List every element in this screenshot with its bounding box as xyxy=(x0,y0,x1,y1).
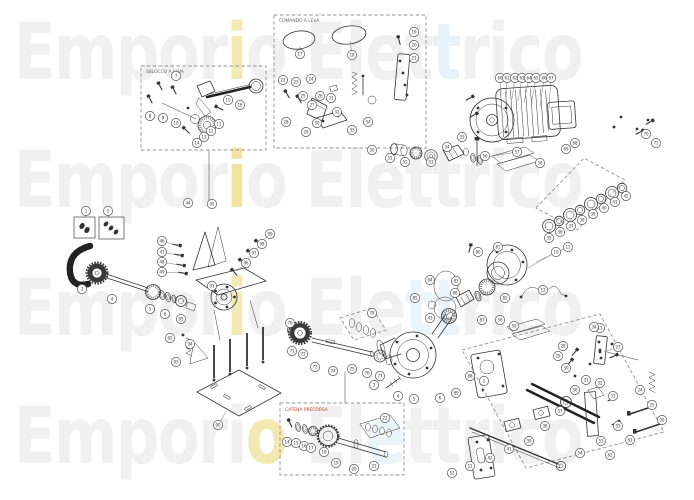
svg-text:6: 6 xyxy=(164,312,167,317)
part-balloon: 99 xyxy=(265,229,274,238)
svg-text:78: 78 xyxy=(369,311,375,316)
svg-text:38: 38 xyxy=(542,424,548,429)
parts-diagram-page: Emporio ElettricoEmporio ElettricoEmpori… xyxy=(0,0,694,500)
part-balloon: 50 xyxy=(367,145,376,154)
part-balloon: 48 xyxy=(157,257,166,266)
part-balloon: 78 xyxy=(367,308,376,317)
part-balloon: 87 xyxy=(477,315,486,324)
svg-text:70: 70 xyxy=(643,132,649,137)
part-balloon: 34 xyxy=(589,322,598,331)
part-balloon: 33 xyxy=(347,125,356,134)
part-balloon: 92 xyxy=(165,333,174,342)
svg-text:5: 5 xyxy=(413,397,416,402)
part-balloon: 10 xyxy=(551,247,560,256)
part-balloon: 32 xyxy=(332,107,341,116)
svg-text:5: 5 xyxy=(149,307,152,312)
part-balloon: 22 xyxy=(278,75,287,84)
part-balloon: 94 xyxy=(185,339,194,348)
svg-text:87: 87 xyxy=(479,318,485,323)
svg-text:4: 4 xyxy=(397,394,400,399)
part-balloon: 4 xyxy=(393,391,402,400)
svg-text:71: 71 xyxy=(289,349,295,354)
part-balloon: 69 xyxy=(561,144,570,153)
part-balloon: 27 xyxy=(307,100,316,109)
svg-text:94: 94 xyxy=(187,342,193,347)
part-balloon: 73 xyxy=(310,362,319,371)
svg-text:48: 48 xyxy=(159,260,165,265)
part-balloon: 3 xyxy=(369,380,378,389)
bracket-foot xyxy=(196,268,266,295)
svg-text:76: 76 xyxy=(364,371,370,376)
part-balloon: 10 xyxy=(171,118,180,127)
svg-text:4: 4 xyxy=(111,297,114,302)
svg-text:88: 88 xyxy=(467,374,473,379)
part-balloon: 39 xyxy=(588,209,597,218)
inset-lever-control-label: COMANDO A LEVA xyxy=(279,18,319,24)
part-balloon: 17 xyxy=(295,49,304,58)
svg-text:97: 97 xyxy=(251,251,257,256)
svg-text:18: 18 xyxy=(321,450,327,455)
part-balloon: 29 xyxy=(301,127,310,136)
svg-text:41: 41 xyxy=(612,200,618,205)
svg-text:42: 42 xyxy=(487,456,493,461)
svg-text:20: 20 xyxy=(351,467,357,472)
svg-text:2: 2 xyxy=(107,209,110,214)
svg-text:73: 73 xyxy=(312,365,318,370)
svg-text:61: 61 xyxy=(627,438,633,443)
part-balloon: 4 xyxy=(107,294,116,303)
svg-text:54: 54 xyxy=(444,145,450,150)
svg-text:13: 13 xyxy=(201,135,207,140)
part-balloon: 11 xyxy=(563,242,572,251)
svg-text:45: 45 xyxy=(209,202,215,207)
svg-text:57: 57 xyxy=(514,150,520,155)
svg-text:46: 46 xyxy=(159,239,165,244)
part-balloon: 36 xyxy=(570,385,579,394)
svg-text:51: 51 xyxy=(467,464,473,469)
svg-text:16: 16 xyxy=(237,103,243,108)
part-balloon: 11 xyxy=(214,119,223,128)
part-balloon: 57 xyxy=(512,147,521,156)
part-balloon: 40 xyxy=(599,203,608,212)
part-balloon: 68 xyxy=(570,138,579,147)
part-balloon: 25 xyxy=(298,91,307,100)
svg-text:14: 14 xyxy=(284,440,290,445)
kit-sprocket xyxy=(319,427,338,446)
svg-text:40: 40 xyxy=(601,206,607,211)
svg-text:84: 84 xyxy=(427,278,433,283)
svg-text:30: 30 xyxy=(314,121,320,126)
svg-text:15: 15 xyxy=(225,98,231,103)
svg-text:59: 59 xyxy=(511,324,517,329)
svg-text:22: 22 xyxy=(280,78,286,83)
svg-text:8: 8 xyxy=(149,114,152,119)
svg-text:72: 72 xyxy=(300,352,306,357)
part-balloon: 72 xyxy=(298,349,307,358)
part-balloon: 38 xyxy=(577,215,586,224)
gasket xyxy=(497,155,539,171)
svg-text:93: 93 xyxy=(173,360,179,365)
part-balloon: 61 xyxy=(625,435,634,444)
svg-text:53: 53 xyxy=(428,160,434,165)
part-balloon: 51 xyxy=(465,461,474,470)
svg-text:6: 6 xyxy=(439,396,442,401)
part-balloon: 77 xyxy=(375,371,384,380)
svg-text:12: 12 xyxy=(540,288,546,293)
svg-text:21: 21 xyxy=(371,464,377,469)
svg-text:27: 27 xyxy=(309,103,315,108)
lever-knob xyxy=(249,79,263,93)
svg-text:65: 65 xyxy=(533,76,539,81)
part-balloon: 42 xyxy=(621,191,630,200)
part-balloon: 89 xyxy=(451,388,460,397)
part-balloon: 55 xyxy=(613,421,622,430)
part-balloon: 25 xyxy=(647,400,656,409)
part-balloon: 14 xyxy=(282,437,291,446)
svg-text:17: 17 xyxy=(308,446,314,451)
part-balloon: 42 xyxy=(485,453,494,462)
part-balloon: 36 xyxy=(555,227,564,236)
ring-light xyxy=(282,29,316,51)
svg-text:79: 79 xyxy=(287,321,293,326)
svg-text:95: 95 xyxy=(178,317,184,322)
svg-text:55: 55 xyxy=(615,424,621,429)
svg-text:50: 50 xyxy=(369,148,375,153)
svg-text:28: 28 xyxy=(560,344,566,349)
spring xyxy=(649,372,655,393)
part-balloon: 31 xyxy=(581,375,590,384)
svg-text:49: 49 xyxy=(159,270,165,275)
part-balloon: 59 xyxy=(509,321,518,330)
part-balloon: 52 xyxy=(400,157,409,166)
svg-text:83: 83 xyxy=(453,279,459,284)
svg-text:14: 14 xyxy=(194,141,200,146)
part-balloon: 17 xyxy=(306,443,315,452)
part-balloon: 9 xyxy=(158,113,167,122)
svg-text:62: 62 xyxy=(607,453,613,458)
svg-text:11: 11 xyxy=(565,245,571,250)
svg-text:19: 19 xyxy=(333,461,339,466)
part-balloon: 82 xyxy=(500,293,509,302)
part-balloon: 47 xyxy=(157,247,166,256)
part-balloon: 6 xyxy=(160,309,169,318)
part-balloon: 24 xyxy=(635,385,644,394)
part-balloon: 53 xyxy=(426,157,435,166)
part-balloon: 71 xyxy=(651,138,660,147)
part-balloon: 22 xyxy=(380,413,389,422)
svg-text:37: 37 xyxy=(557,409,563,414)
part-balloon: 1 xyxy=(81,206,90,215)
svg-text:74: 74 xyxy=(330,369,336,374)
part-balloon: 88 xyxy=(465,371,474,380)
part-balloon: 71 xyxy=(287,346,296,355)
part-balloon: 52 xyxy=(447,468,456,477)
svg-text:24: 24 xyxy=(637,388,643,393)
part-balloon: 15 xyxy=(223,95,232,104)
part-balloon: 74 xyxy=(328,366,337,375)
part-balloon: 80 xyxy=(473,247,482,256)
release-rail-assembly xyxy=(462,286,664,479)
svg-text:22: 22 xyxy=(382,416,388,421)
base-plate xyxy=(197,370,281,416)
bracket-assembly xyxy=(172,227,281,416)
svg-text:43: 43 xyxy=(427,316,433,321)
svg-text:29: 29 xyxy=(303,130,309,135)
part-balloon: 55 xyxy=(457,132,466,141)
part-balloon: 5 xyxy=(145,304,154,313)
part-balloon: 56 xyxy=(495,315,504,324)
svg-text:21: 21 xyxy=(411,56,417,61)
svg-text:34: 34 xyxy=(591,325,597,330)
part-balloon: 23 xyxy=(291,77,300,86)
part-balloon: 75 xyxy=(347,364,356,373)
svg-text:26: 26 xyxy=(659,418,665,423)
svg-text:33: 33 xyxy=(610,394,616,399)
svg-text:52: 52 xyxy=(449,471,455,476)
svg-text:89: 89 xyxy=(453,391,459,396)
part-balloon: 30 xyxy=(312,118,321,127)
svg-text:32: 32 xyxy=(334,110,340,115)
svg-text:67: 67 xyxy=(548,76,554,81)
svg-text:77: 77 xyxy=(377,374,383,379)
svg-text:41: 41 xyxy=(506,447,512,452)
svg-text:86: 86 xyxy=(452,291,458,296)
svg-text:68: 68 xyxy=(572,141,578,146)
svg-text:52: 52 xyxy=(402,160,408,165)
svg-text:81: 81 xyxy=(495,245,501,250)
part-balloon: 27 xyxy=(613,342,622,351)
part-balloon: 28 xyxy=(558,341,567,350)
part-balloon: 18 xyxy=(319,447,328,456)
svg-text:80: 80 xyxy=(475,250,481,255)
svg-text:36: 36 xyxy=(572,388,578,393)
part-balloon: 37 xyxy=(555,406,564,415)
part-balloon: 62 xyxy=(605,450,614,459)
part-balloon: 35 xyxy=(544,233,553,242)
part-balloon: 14 xyxy=(192,138,201,147)
svg-text:3: 3 xyxy=(373,383,376,388)
svg-text:23: 23 xyxy=(293,80,299,85)
part-balloon: 20 xyxy=(349,464,358,473)
part-balloon: 6 xyxy=(435,393,444,402)
part-balloon: 28 xyxy=(281,117,290,126)
svg-text:96: 96 xyxy=(243,261,249,266)
svg-text:90: 90 xyxy=(215,423,221,428)
svg-text:85: 85 xyxy=(412,296,418,301)
svg-text:38: 38 xyxy=(579,218,585,223)
svg-text:42: 42 xyxy=(623,194,629,199)
exploded-diagram: SBLOCCO A LEVA COMANDO A LEVA xyxy=(0,0,694,500)
part-balloon: 38 xyxy=(540,421,549,430)
part-balloon: 45 xyxy=(207,199,216,208)
part-balloon: 2 xyxy=(479,376,488,385)
svg-text:19: 19 xyxy=(411,30,417,35)
part-balloon: 26 xyxy=(315,91,324,100)
ring-dark xyxy=(331,24,367,47)
part-balloon: 41 xyxy=(504,444,513,453)
inset-chain-kit-label: CATENA PRECORSA xyxy=(285,407,328,413)
part-balloon: 24 xyxy=(306,74,315,83)
part-balloon: 95 xyxy=(176,314,185,323)
svg-text:29: 29 xyxy=(555,354,561,359)
svg-text:58: 58 xyxy=(537,161,543,166)
motor xyxy=(465,84,655,144)
svg-text:32: 32 xyxy=(597,381,603,386)
part-balloon: 41 xyxy=(610,197,619,206)
part-balloon: 51 xyxy=(385,153,394,162)
terminal-box xyxy=(547,101,576,130)
part-balloon: 58 xyxy=(535,158,544,167)
svg-text:27: 27 xyxy=(615,345,621,350)
part-balloon: 31 xyxy=(326,93,335,102)
svg-text:69: 69 xyxy=(563,147,569,152)
part-balloon: 5 xyxy=(409,394,418,403)
part-balloon: 90 xyxy=(213,420,222,429)
part-balloon: 26 xyxy=(657,415,666,424)
part-balloon: 98 xyxy=(257,239,266,248)
svg-text:56: 56 xyxy=(482,154,488,159)
svg-text:15: 15 xyxy=(293,441,299,446)
part-balloon: 19 xyxy=(331,458,340,467)
chain xyxy=(70,246,90,285)
svg-text:10: 10 xyxy=(173,121,179,126)
part-balloon: 56 xyxy=(480,151,489,160)
part-balloon: 97 xyxy=(249,248,258,257)
svg-text:31: 31 xyxy=(328,96,334,101)
svg-text:99: 99 xyxy=(267,232,273,237)
part-balloon: 18 xyxy=(347,50,356,59)
svg-text:30: 30 xyxy=(563,366,569,371)
svg-text:39: 39 xyxy=(526,439,532,444)
part-balloon: 16 xyxy=(235,100,244,109)
svg-text:91: 91 xyxy=(209,284,215,289)
svg-text:47: 47 xyxy=(159,250,165,255)
part-balloon: 19 xyxy=(409,27,418,36)
svg-text:44: 44 xyxy=(185,201,191,206)
part-balloon: 3 xyxy=(77,284,86,293)
svg-text:3: 3 xyxy=(81,287,84,292)
svg-text:36: 36 xyxy=(557,230,563,235)
part-balloon: 44 xyxy=(183,198,192,207)
part-balloon: 49 xyxy=(157,267,166,276)
part-balloon: 43 xyxy=(425,313,434,322)
part-balloon: 20 xyxy=(409,40,418,49)
part-balloon: 85 xyxy=(410,293,419,302)
svg-text:1: 1 xyxy=(85,209,88,214)
part-balloon: 81 xyxy=(493,242,502,251)
svg-text:98: 98 xyxy=(259,242,265,247)
svg-text:35: 35 xyxy=(546,236,552,241)
part-balloon: 91 xyxy=(207,281,216,290)
svg-text:24: 24 xyxy=(308,77,314,82)
svg-text:18: 18 xyxy=(349,53,355,58)
part-balloon: 76 xyxy=(362,368,371,377)
svg-text:9: 9 xyxy=(162,116,165,121)
side-plate xyxy=(394,54,410,101)
svg-text:7: 7 xyxy=(175,74,178,79)
svg-text:54: 54 xyxy=(577,451,583,456)
cover-plate xyxy=(470,350,507,399)
svg-text:26: 26 xyxy=(317,94,323,99)
svg-text:28: 28 xyxy=(283,120,289,125)
part-balloon: 8 xyxy=(145,111,154,120)
part-balloon: 37 xyxy=(566,221,575,230)
svg-text:92: 92 xyxy=(167,336,173,341)
svg-text:55: 55 xyxy=(459,135,465,140)
svg-text:11: 11 xyxy=(216,122,222,127)
svg-text:37: 37 xyxy=(568,224,574,229)
part-balloon: 53 xyxy=(596,436,605,445)
svg-text:12: 12 xyxy=(208,129,214,134)
part-balloon: 70 xyxy=(641,129,650,138)
svg-text:51: 51 xyxy=(387,156,393,161)
svg-text:31: 31 xyxy=(583,378,589,383)
svg-text:39: 39 xyxy=(590,212,596,217)
part-balloon: 39 xyxy=(524,436,533,445)
svg-text:25: 25 xyxy=(300,94,306,99)
svg-text:56: 56 xyxy=(497,318,503,323)
svg-text:25: 25 xyxy=(649,403,655,408)
part-balloon: 67 xyxy=(546,73,555,82)
part-balloon: 83 xyxy=(451,276,460,285)
part-balloon: 54 xyxy=(575,448,584,457)
part-balloon: 79 xyxy=(285,318,294,327)
callout-balloons: 7891011121314151617181920212223242526272… xyxy=(77,27,666,477)
part-balloon: 21 xyxy=(369,461,378,470)
svg-text:10: 10 xyxy=(553,250,559,255)
part-balloon: 86 xyxy=(450,288,459,297)
part-balloon: 93 xyxy=(171,357,180,366)
part-balloon: 29 xyxy=(553,351,562,360)
part-balloon: 30 xyxy=(561,363,570,372)
svg-text:71: 71 xyxy=(653,141,659,146)
svg-text:82: 82 xyxy=(502,296,508,301)
part-balloon: 54 xyxy=(442,142,451,151)
svg-text:34: 34 xyxy=(365,120,371,125)
part-balloon: 96 xyxy=(241,258,250,267)
part-balloon: 84 xyxy=(425,275,434,284)
part-balloon: 46 xyxy=(157,236,166,245)
part-balloon: 7 xyxy=(171,71,180,80)
svg-text:20: 20 xyxy=(411,43,417,48)
svg-text:75: 75 xyxy=(349,367,355,372)
svg-text:2: 2 xyxy=(483,379,486,384)
svg-text:33: 33 xyxy=(349,128,355,133)
part-balloon: 12 xyxy=(538,285,547,294)
part-balloon: 33 xyxy=(608,391,617,400)
svg-text:61: 61 xyxy=(504,76,510,81)
part-balloon: 21 xyxy=(409,53,418,62)
spring xyxy=(352,72,357,95)
part-balloon: 32 xyxy=(595,378,604,387)
part-balloon: 34 xyxy=(363,117,372,126)
svg-text:53: 53 xyxy=(598,439,604,444)
svg-text:17: 17 xyxy=(297,52,303,57)
part-balloon: 2 xyxy=(103,206,112,215)
